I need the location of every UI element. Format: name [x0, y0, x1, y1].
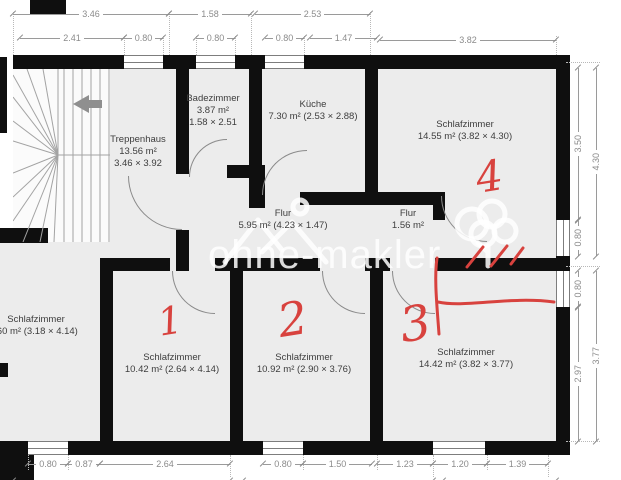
wall — [370, 271, 383, 441]
window — [263, 441, 303, 455]
dimension: 2.64 — [100, 458, 230, 470]
dimension: 0.80 — [196, 32, 235, 44]
wall — [0, 363, 8, 377]
room-label-flur: Flur 5.95 m² (4.23 × 1.47) — [239, 208, 328, 232]
wall — [176, 230, 189, 271]
dimension: 2.41 — [20, 32, 124, 44]
dimension: 3.50 — [572, 68, 584, 220]
window — [265, 55, 304, 69]
wall — [365, 69, 378, 205]
room-label-schlafzimmer-2: Schlafzimmer 10.92 m² (2.90 × 3.76) — [257, 352, 351, 376]
dimension: 1.50 — [303, 458, 372, 470]
wall — [0, 57, 7, 133]
extension-line — [548, 455, 549, 477]
room-label-kueche: Küche 7.30 m² (2.53 × 2.88) — [269, 99, 358, 123]
wall — [249, 69, 262, 165]
stair-direction-arrow — [73, 95, 102, 113]
dimension-cutoff — [13, 475, 230, 480]
dimension: 3.77 — [590, 271, 602, 441]
dimension: 0.80 — [28, 458, 68, 470]
floorplan-image: ohne-makler Treppenhaus 13.56 m² 3.46 × … — [0, 0, 621, 480]
room-label-schlafzimmer-left: Schlafzimmer .60 m² (3.18 × 4.14) — [0, 314, 78, 338]
dimension: 2.97 — [572, 307, 584, 441]
dimension: 0.87 — [68, 458, 100, 470]
dimension: 3.82 — [380, 34, 556, 46]
dimension: 0.80 — [124, 32, 163, 44]
window — [196, 55, 235, 69]
wall — [100, 258, 113, 441]
extension-line — [163, 36, 164, 55]
extension-line — [566, 62, 600, 63]
dimension: 0.80 — [265, 32, 304, 44]
dimension: 4.30 — [590, 68, 602, 256]
staircase — [13, 69, 110, 242]
dimension: 1.39 — [487, 458, 548, 470]
dimension: 0.80 — [572, 220, 584, 256]
room-label-schlafzimmer-3: Schlafzimmer 14.42 m² (3.82 × 3.77) — [419, 347, 513, 371]
dimension: 2.53 — [255, 8, 370, 20]
dimension: 1.58 — [169, 8, 251, 20]
extension-line — [251, 12, 252, 55]
window — [124, 55, 163, 69]
room-label-schlafzimmer-4: Schlafzimmer 14.55 m² (3.82 × 4.30) — [418, 119, 512, 143]
window — [556, 271, 570, 307]
dimension: 3.46 — [13, 8, 169, 20]
extension-line — [235, 36, 236, 55]
dimension-cutoff — [443, 475, 556, 480]
room-label-flur-2: Flur 1.56 m² — [392, 208, 424, 232]
extension-line — [566, 266, 600, 267]
dimension: 0.80 — [572, 271, 584, 307]
window — [28, 441, 68, 455]
dimension: 1.20 — [433, 458, 487, 470]
dimension: 1.23 — [377, 458, 433, 470]
dimension-cutoff — [243, 475, 433, 480]
extension-line — [304, 36, 305, 55]
watermark-text: ohne-makler — [208, 233, 441, 278]
room-label-treppenhaus: Treppenhaus 13.56 m² 3.46 × 3.92 — [110, 134, 166, 170]
extension-line — [230, 455, 231, 477]
wall — [435, 258, 556, 271]
room-label-schlafzimmer-1: Schlafzimmer 10.42 m² (2.64 × 4.14) — [125, 352, 219, 376]
dimension: 1.47 — [310, 32, 377, 44]
wall — [230, 271, 243, 441]
window — [433, 441, 485, 455]
wall — [377, 192, 433, 205]
window — [556, 220, 570, 256]
room-label-badezimmer: Badezimmer 3.87 m² 1.58 × 2.51 — [186, 93, 239, 129]
floor-area-left-cut — [0, 242, 13, 441]
dimension: 0.80 — [263, 458, 303, 470]
